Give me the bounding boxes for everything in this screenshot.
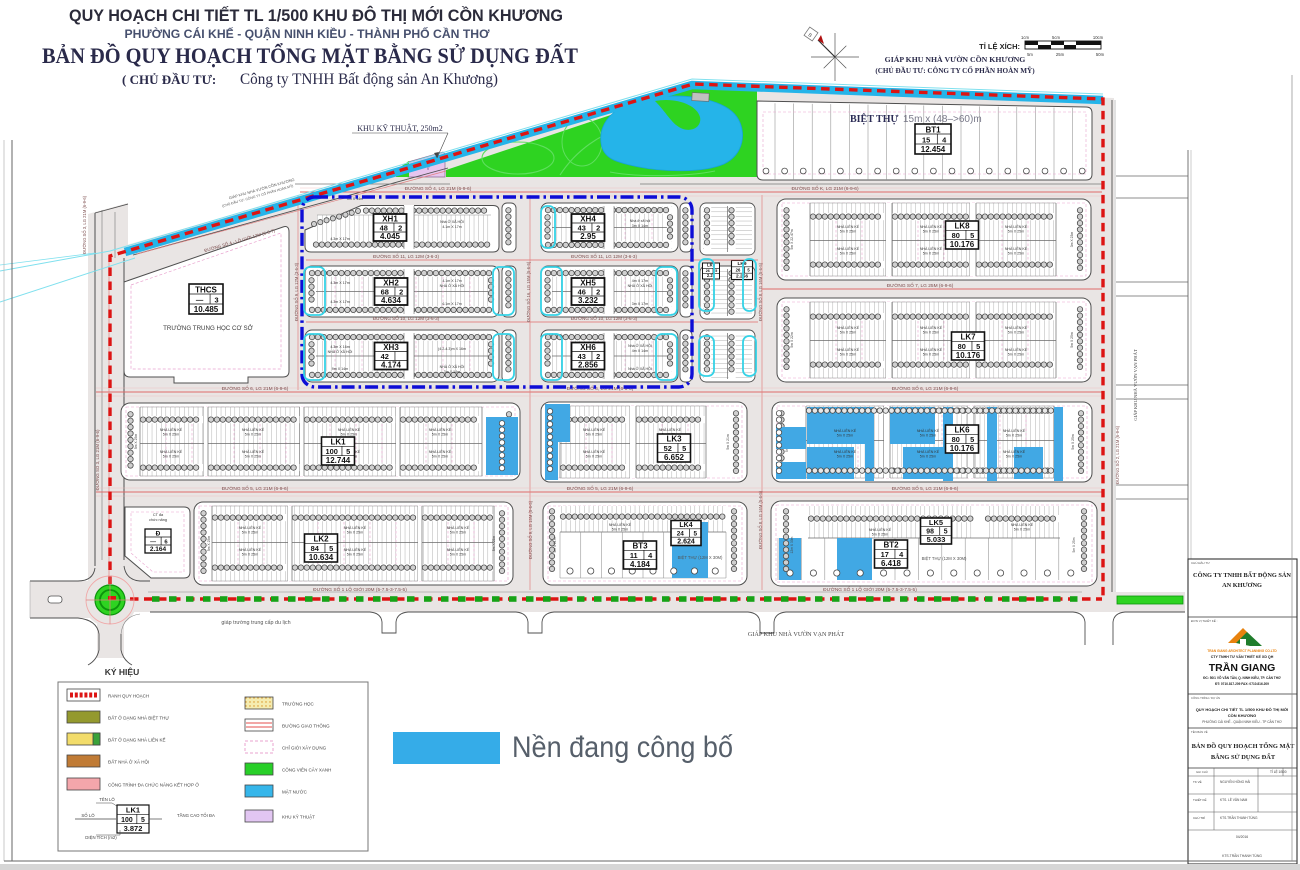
svg-text:68: 68 — [381, 287, 389, 296]
svg-text:4.3m X 17m: 4.3m X 17m — [330, 281, 349, 285]
svg-text:GIÁP KHU NHÀ VƯỜN VẠN PHÁT: GIÁP KHU NHÀ VƯỜN VẠN PHÁT — [748, 630, 845, 638]
svg-text:NHÀ LIÊN KẾ: NHÀ LIÊN KẾ — [837, 224, 860, 229]
svg-text:CỒN KHƯƠNG: CỒN KHƯƠNG — [1228, 713, 1257, 718]
svg-text:5m X 25m: 5m X 25m — [923, 251, 939, 255]
svg-text:5m X 25m: 5m X 25m — [347, 530, 363, 534]
svg-text:NHÀ LIÊN KẾ: NHÀ LIÊN KẾ — [659, 427, 682, 432]
svg-text:52: 52 — [664, 444, 672, 453]
svg-text:XH5: XH5 — [580, 278, 596, 287]
svg-text:5m X 25m: 5m X 25m — [872, 533, 888, 537]
svg-text:3m X 14m: 3m X 14m — [444, 370, 460, 374]
svg-text:43: 43 — [578, 223, 586, 232]
svg-text:12m X 30m: 12m X 30m — [790, 536, 794, 553]
svg-text:LK6: LK6 — [954, 426, 970, 435]
svg-text:ĐT: 0710.817.209 FAX: 0710.: ĐT: 0710.817.209 FAX: 0710.816.209 — [1215, 682, 1269, 686]
svg-text:5m X 25m: 5m X 25m — [920, 433, 936, 437]
svg-text:4.634: 4.634 — [381, 296, 402, 305]
svg-text:1cm: 1cm — [1021, 35, 1029, 40]
svg-text:5m X 21m: 5m X 21m — [553, 537, 557, 552]
svg-text:MẶT NƯỚC: MẶT NƯỚC — [282, 789, 308, 795]
svg-text:100: 100 — [121, 817, 133, 824]
svg-text:NHÀ LIÊN KẾ: NHÀ LIÊN KẾ — [583, 449, 606, 454]
svg-text:( CHỦ ĐẦU TƯ:: ( CHỦ ĐẦU TƯ: — [122, 72, 216, 87]
svg-text:ĐƯỜNG SỐ 11, LG 12M (3-6-3): ĐƯỜNG SỐ 11, LG 12M (3-6-3) — [571, 253, 637, 259]
svg-text:ĐƯỜNG SỐ 9, LG 15M (5-6-5): ĐƯỜNG SỐ 9, LG 15M (5-6-5) — [528, 500, 533, 559]
svg-text:5m X 25m: 5m X 25m — [450, 552, 466, 556]
svg-text:GIÁP KHU NHÀ VƯỜN VẠN PHÁT: GIÁP KHU NHÀ VƯỜN VẠN PHÁT — [1133, 349, 1138, 421]
svg-text:ĐƯỜNG SỐ 4, LG 21M (6-9-6): ĐƯỜNG SỐ 4, LG 21M (6-9-6) — [405, 185, 472, 192]
svg-text:NHÀ Ở XÃ HỘI: NHÀ Ở XÃ HỘI — [328, 349, 353, 354]
svg-text:CHỈ GIỚI XÂY DỰNG: CHỈ GIỚI XÂY DỰNG — [282, 745, 327, 751]
svg-text:100: 100 — [326, 447, 338, 456]
svg-text:TẦNG CAO TỐI ĐA: TẦNG CAO TỐI ĐA — [177, 813, 215, 818]
svg-text:AN KHƯƠNG: AN KHƯƠNG — [1222, 582, 1262, 589]
svg-text:Nền đang công bố: Nền đang công bố — [512, 731, 733, 764]
svg-text:10.176: 10.176 — [950, 240, 975, 249]
svg-text:5m X 25m: 5m X 25m — [923, 229, 939, 233]
svg-text:LK2: LK2 — [313, 535, 329, 544]
svg-text:LK1: LK1 — [330, 438, 346, 447]
svg-text:80: 80 — [952, 231, 960, 240]
svg-text:2.95: 2.95 — [580, 232, 596, 241]
svg-text:6.1m X 17m: 6.1m X 17m — [442, 302, 461, 306]
svg-text:TK VẼ: TK VẼ — [1193, 779, 1202, 784]
svg-text:10cm: 10cm — [1093, 35, 1104, 40]
svg-text:CHỦ ĐẦU TƯ: CHỦ ĐẦU TƯ — [1191, 560, 1210, 565]
svg-text:5m X 25m: 5m X 25m — [432, 454, 448, 458]
svg-text:XH2: XH2 — [383, 278, 399, 287]
svg-text:NHÀ LIÊN KẾ: NHÀ LIÊN KẾ — [834, 449, 857, 454]
svg-text:5.033: 5.033 — [927, 535, 946, 544]
svg-text:84: 84 — [311, 544, 320, 553]
svg-text:ĐẤT NHÀ Ở XÃ HỘI: ĐẤT NHÀ Ở XÃ HỘI — [108, 759, 149, 765]
svg-text:5m: 5m — [1027, 52, 1033, 57]
svg-text:KTS.TRẦN THANH TÙNG: KTS.TRẦN THANH TÙNG — [1220, 815, 1258, 820]
svg-text:3: 3 — [214, 295, 218, 304]
svg-text:5m X 25m: 5m X 25m — [586, 432, 602, 436]
svg-text:CTY TNHH TƯ VẤN THIẾT KẾ XD QH: CTY TNHH TƯ VẤN THIẾT KẾ XD QH — [1211, 654, 1274, 659]
svg-text:5m X 25m: 5m X 25m — [837, 433, 853, 437]
svg-text:XH1: XH1 — [382, 214, 398, 223]
svg-text:giáp trường trung cấp du lịch: giáp trường trung cấp du lịch — [221, 620, 290, 626]
svg-text:NHÀ LIÊN KẾ: NHÀ LIÊN KẾ — [869, 527, 892, 532]
svg-text:chức năng: chức năng — [149, 518, 167, 522]
svg-text:5cm: 5cm — [1052, 35, 1060, 40]
svg-text:TRƯỜNG HỌC: TRƯỜNG HỌC — [282, 701, 314, 707]
svg-text:4.174: 4.174 — [381, 361, 402, 370]
svg-text:5m X 25m: 5m X 25m — [1006, 433, 1022, 437]
svg-text:ĐƯỜNG SỐ 8, LG 16M (5-6-5): ĐƯỜNG SỐ 8, LG 16M (5-6-5) — [758, 490, 763, 549]
svg-text:CÔNG TY TNHH BẤT ĐỘNG SẢN: CÔNG TY TNHH BẤT ĐỘNG SẢN — [1193, 571, 1291, 579]
svg-text:4.1m X 17m: 4.1m X 17m — [442, 225, 461, 229]
svg-text:5m X 25m: 5m X 25m — [163, 454, 179, 458]
svg-text:NHÀ LIÊN KẾ: NHÀ LIÊN KẾ — [837, 325, 860, 330]
svg-text:5m X 25m: 5m X 25m — [612, 528, 628, 532]
svg-text:ĐƯỜNG SỐ 3, LG 21M (6-9-6): ĐƯỜNG SỐ 3, LG 21M (6-9-6) — [95, 429, 100, 490]
svg-text:5m X 25m: 5m X 25m — [347, 552, 363, 556]
svg-text:Nhà ở xã hội: Nhà ở xã hội — [630, 219, 651, 223]
svg-text:2: 2 — [596, 352, 600, 361]
svg-text:NHÀ LIÊN KẾ: NHÀ LIÊN KẾ — [447, 525, 470, 530]
svg-text:80: 80 — [958, 342, 966, 351]
svg-text:(4.2-4.3)m X 16m: (4.2-4.3)m X 16m — [438, 347, 466, 351]
svg-text:NHÀ LIÊN KẾ: NHÀ LIÊN KẾ — [917, 428, 940, 433]
svg-text:5m X 25m: 5m X 25m — [1008, 229, 1024, 233]
svg-text:5m X 25m: 5m X 25m — [1014, 528, 1030, 532]
svg-text:5m X 25m: 5m X 25m — [840, 229, 856, 233]
svg-text:46: 46 — [578, 287, 586, 296]
svg-text:25m: 25m — [1056, 52, 1065, 57]
svg-text:LK5: LK5 — [929, 518, 943, 527]
svg-text:5: 5 — [715, 269, 717, 273]
svg-text:2.856: 2.856 — [578, 361, 599, 370]
svg-text:NHÀ LIÊN KẾ: NHÀ LIÊN KẾ — [920, 347, 943, 352]
svg-text:NGUYỄN HỒNG HẢI: NGUYỄN HỒNG HẢI — [1220, 779, 1250, 784]
svg-text:TRƯỜNG TRUNG HỌC CƠ SỞ: TRƯỜNG TRUNG HỌC CƠ SỞ — [163, 325, 254, 332]
svg-text:ĐẤT Ở DẠNG NHÀ BIỆT THỰ: ĐẤT Ở DẠNG NHÀ BIỆT THỰ — [108, 714, 169, 721]
svg-text:NHÀ LIÊN KẾ: NHÀ LIÊN KẾ — [917, 449, 940, 454]
svg-text:GHI CHÚ: GHI CHÚ — [1196, 769, 1208, 774]
svg-text:ĐƯỜNG SỐ 10, LG 12M (3-6-3): ĐƯỜNG SỐ 10, LG 12M (3-6-3) — [373, 315, 440, 321]
svg-text:NHÀ LIÊN KẾ: NHÀ LIÊN KẾ — [837, 347, 860, 352]
svg-text:Nhà Ở XÃ HỘI: Nhà Ở XÃ HỘI — [440, 219, 464, 224]
svg-text:NHÀ LIÊN KẾ: NHÀ LIÊN KẾ — [1011, 522, 1034, 527]
svg-text:ĐƯỜNG GIAO THÔNG: ĐƯỜNG GIAO THÔNG — [282, 723, 330, 729]
svg-text:TRAN GIANG ARCHITECT PLANNING: TRAN GIANG ARCHITECT PLANNING CO.LTD — [1207, 649, 1277, 653]
svg-text:XH4: XH4 — [580, 214, 596, 223]
svg-text:4.184: 4.184 — [630, 560, 651, 569]
svg-text:4.3m X 17m: 4.3m X 17m — [330, 237, 349, 241]
svg-text:ĐƯỜNG SỐ 9, LG 12M (3-6-3): ĐƯỜNG SỐ 9, LG 12M (3-6-3) — [294, 262, 299, 321]
svg-text:BẢN ĐỒ QUY HOẠCH TỔNG MẶT: BẢN ĐỒ QUY HOẠCH TỔNG MẶT — [1192, 742, 1296, 750]
svg-text:5m X 25m: 5m X 25m — [1070, 332, 1074, 348]
svg-text:TRẦN GIANG: TRẦN GIANG — [1209, 661, 1276, 674]
svg-text:5: 5 — [682, 444, 686, 453]
svg-text:17: 17 — [881, 550, 889, 559]
svg-text:5m X 25m: 5m X 25m — [134, 434, 138, 450]
svg-text:ĐƯỜNG SỐ 5, LG 21M (6-9-6): ĐƯỜNG SỐ 5, LG 21M (6-9-6) — [567, 485, 634, 492]
svg-text:4.1m X 17m: 4.1m X 17m — [442, 279, 461, 283]
svg-text:ĐC: 50/1 VÕ VĂN TẦN, Q. NINH K: ĐC: 50/1 VÕ VĂN TẦN, Q. NINH KIỀU, TP. C… — [1203, 675, 1281, 680]
svg-text:NHÀ LIÊN KẾ: NHÀ LIÊN KẾ — [609, 522, 632, 527]
svg-text:RANH QUY HOẠCH: RANH QUY HOẠCH — [108, 694, 149, 699]
svg-text:5m X 25m: 5m X 25m — [245, 432, 261, 436]
svg-text:ĐƯỜNG SỐ 3, LG 21M (6-9-6): ĐƯỜNG SỐ 3, LG 21M (6-9-6) — [82, 195, 87, 254]
svg-text:—: — — [150, 539, 156, 545]
svg-text:BẢN ĐỒ QUY HOẠCH TỔNG MẶT BẰNG: BẢN ĐỒ QUY HOẠCH TỔNG MẶT BẰNG SỬ DỤNG Đ… — [42, 42, 578, 68]
svg-text:Nhà Ở XÃ HỘI: Nhà Ở XÃ HỘI — [628, 343, 652, 348]
svg-text:5: 5 — [970, 435, 974, 444]
svg-text:ĐƯỜNG SỐ K, LG 21M (6-9-6): ĐƯỜNG SỐ K, LG 21M (6-9-6) — [791, 185, 859, 192]
svg-text:5: 5 — [141, 817, 145, 824]
svg-text:(CHỦ ĐẦU TƯ: CÔNG TY CỔ PHẦN H: (CHỦ ĐẦU TƯ: CÔNG TY CỔ PHẦN HOÀN MỸ) — [875, 65, 1035, 75]
svg-text:5m X 25m: 5m X 25m — [840, 352, 856, 356]
svg-text:NHÀ LIÊN KẾ: NHÀ LIÊN KẾ — [1005, 325, 1028, 330]
svg-text:5m X 25m: 5m X 25m — [432, 432, 448, 436]
svg-text:NHÀ LIÊN KẾ: NHÀ LIÊN KẾ — [242, 427, 265, 432]
svg-text:6.652: 6.652 — [664, 453, 685, 462]
svg-text:NHÀ Ở XÃ HỘI: NHÀ Ở XÃ HỘI — [440, 283, 465, 288]
svg-text:5m X 25m: 5m X 25m — [923, 330, 939, 334]
svg-text:NHÀ LIÊN KẾ: NHÀ LIÊN KẾ — [1003, 449, 1026, 454]
svg-text:5: 5 — [976, 342, 980, 351]
svg-text:TỈ LỆ 1/500: TỈ LỆ 1/500 — [1270, 769, 1287, 774]
svg-text:CÔNG TRÌNH ĐA CHỨC NĂNG KẾT HỢ: CÔNG TRÌNH ĐA CHỨC NĂNG KẾT HỢP Ở — [108, 782, 199, 788]
svg-text:BIỆT THỰ: BIỆT THỰ — [850, 112, 898, 125]
svg-text:LK8: LK8 — [954, 222, 970, 231]
svg-text:5m X 25m: 5m X 25m — [1072, 537, 1076, 552]
svg-text:5m X 22m: 5m X 22m — [790, 332, 794, 348]
svg-text:2.624: 2.624 — [677, 539, 695, 546]
svg-text:4.3m X 16m: 4.3m X 16m — [330, 345, 349, 349]
svg-text:5m X 25m: 5m X 25m — [341, 432, 357, 436]
svg-text:NHÀ LIÊN KẾ: NHÀ LIÊN KẾ — [429, 427, 452, 432]
svg-text:12.744: 12.744 — [326, 456, 351, 465]
svg-text:4m X 14m: 4m X 14m — [632, 349, 648, 353]
svg-text:24: 24 — [677, 531, 685, 538]
svg-text:2: 2 — [596, 287, 600, 296]
svg-text:BẰNG SỬ DỤNG ĐẤT: BẰNG SỬ DỤNG ĐẤT — [1211, 753, 1276, 761]
svg-text:3m X 17m: 3m X 17m — [632, 302, 648, 306]
svg-text:NHÀ LIÊN KẾ: NHÀ LIÊN KẾ — [834, 428, 857, 433]
svg-text:5: 5 — [970, 231, 974, 240]
svg-text:5m X 25m: 5m X 25m — [163, 432, 179, 436]
svg-text:NHÀ LIÊN KẾ: NHÀ LIÊN KẾ — [160, 449, 183, 454]
svg-text:QUY HOẠCH CHI TIẾT TL 1/500 KH: QUY HOẠCH CHI TIẾT TL 1/500 KHU ĐÔ THỊ M… — [69, 6, 563, 25]
svg-text:ĐƯỜNG SỐ 2, LG 21M (6-9-6): ĐƯỜNG SỐ 2, LG 21M (6-9-6) — [1115, 425, 1120, 484]
svg-text:PHƯỜNG CÁI KHẾ - QUẬN NINH KIỀ: PHƯỜNG CÁI KHẾ - QUẬN NINH KIỀU - THÀNH … — [125, 26, 491, 41]
svg-text:NHÀ LIÊN KẾ: NHÀ LIÊN KẾ — [1005, 347, 1028, 352]
svg-text:BIỆT THỰ (12M X 30M): BIỆT THỰ (12M X 30M) — [678, 555, 723, 560]
svg-text:5m X 25m: 5m X 25m — [1071, 434, 1075, 450]
svg-text:4.3m X 17m: 4.3m X 17m — [330, 300, 349, 304]
svg-text:5m X 25m: 5m X 25m — [242, 530, 258, 534]
svg-text:BIỆT THỰ (12M X 30M): BIỆT THỰ (12M X 30M) — [922, 556, 967, 561]
svg-text:CHỦ TRÌ: CHỦ TRÌ — [1193, 815, 1205, 820]
svg-text:CÔNG TRÌNH / DỰ ÁN: CÔNG TRÌNH / DỰ ÁN — [1191, 695, 1220, 700]
svg-text:5m X 25m: 5m X 25m — [1008, 352, 1024, 356]
svg-text:NHÀ LIÊN KẾ: NHÀ LIÊN KẾ — [920, 224, 943, 229]
svg-text:GIÁP KHU NHÀ VƯỜN CỒN KHƯƠNG: GIÁP KHU NHÀ VƯỜN CỒN KHƯƠNG — [885, 54, 1026, 64]
svg-text:4m X 17m: 4m X 17m — [632, 279, 648, 283]
svg-text:LK1: LK1 — [126, 806, 140, 815]
svg-text:ĐƯỜNG SỐ 6, LG 21M (6-9-6): ĐƯỜNG SỐ 6, LG 21M (6-9-6) — [892, 385, 959, 392]
svg-text:—: — — [196, 295, 204, 304]
svg-text:10.485: 10.485 — [194, 305, 219, 314]
svg-text:NHÀ LIÊN KẾ: NHÀ LIÊN KẾ — [920, 325, 943, 330]
svg-text:Nhà Ở XÃ HỘI: Nhà Ở XÃ HỘI — [628, 366, 652, 371]
svg-text:3m X 23m: 3m X 23m — [1070, 232, 1074, 248]
svg-text:KTS. LÊ VĂN NAM: KTS. LÊ VĂN NAM — [1220, 797, 1248, 802]
svg-text:TÊN BẢN VẼ: TÊN BẢN VẼ — [1191, 729, 1208, 734]
svg-text:5: 5 — [329, 544, 333, 553]
svg-text:KHU KỸ THUẬT, 250m2: KHU KỸ THUẬT, 250m2 — [357, 123, 442, 133]
svg-text:ĐẤT Ở DẠNG NHÀ LIÊN KẾ: ĐẤT Ở DẠNG NHÀ LIÊN KẾ — [108, 736, 166, 743]
svg-text:NHÀ LIÊN KẾ: NHÀ LIÊN KẾ — [344, 525, 367, 530]
svg-text:5m X 25m: 5m X 25m — [1006, 454, 1022, 458]
svg-text:5m X 25m: 5m X 25m — [1008, 251, 1024, 255]
svg-text:80: 80 — [952, 435, 960, 444]
svg-text:NHÀ LIÊN KẾ: NHÀ LIÊN KẾ — [583, 427, 606, 432]
svg-text:BT3: BT3 — [632, 542, 648, 551]
svg-text:LK4: LK4 — [679, 522, 692, 529]
svg-text:5m X 25m: 5m X 25m — [450, 530, 466, 534]
svg-text:NHÀ LIÊN KẾ: NHÀ LIÊN KẾ — [837, 246, 860, 251]
svg-text:04/2016: 04/2016 — [1236, 835, 1248, 839]
svg-text:NHÀ LIÊN KẾ: NHÀ LIÊN KẾ — [239, 547, 262, 552]
svg-text:ĐƯỜNG SỐ 7, LG 25M (6-9-6): ĐƯỜNG SỐ 7, LG 25M (6-9-6) — [887, 282, 954, 289]
svg-text:2: 2 — [399, 287, 403, 296]
svg-text:ĐƯỜNG SỐ 1 LỘ GIỚI 20M (5-7.5-: ĐƯỜNG SỐ 1 LỘ GIỚI 20M (5-7.5-3-7.5-5) — [313, 586, 407, 593]
svg-text:5m X 25m: 5m X 25m — [492, 536, 496, 552]
svg-text:ĐƠN VỊ THIẾT KẾ :: ĐƠN VỊ THIẾT KẾ : — [1191, 618, 1218, 623]
svg-text:THIẾT KẾ: THIẾT KẾ — [1193, 797, 1206, 802]
svg-text:DIỆN TÍCH (m2): DIỆN TÍCH (m2) — [85, 835, 117, 840]
svg-text:5m X 25m: 5m X 25m — [837, 454, 853, 458]
svg-text:5m X 21m: 5m X 21m — [726, 434, 730, 450]
svg-text:ĐƯỜNG SỐ 1 LỘ GIỚI 20M (5-7.5-: ĐƯỜNG SỐ 1 LỘ GIỚI 20M (5-7.5-3-7.5-5) — [823, 586, 917, 593]
svg-text:Đ: Đ — [156, 530, 161, 537]
svg-text:4.045: 4.045 — [380, 232, 401, 241]
svg-text:50m: 50m — [1096, 52, 1105, 57]
svg-text:NHÀ LIÊN KẾ: NHÀ LIÊN KẾ — [447, 547, 470, 552]
svg-text:2: 2 — [398, 223, 402, 232]
svg-text:ĐƯỜNG SỐ 6, LG 21M (6-9-6): ĐƯỜNG SỐ 6, LG 21M (6-9-6) — [222, 385, 289, 392]
svg-text:NHÀ LIÊN KẾ: NHÀ LIÊN KẾ — [429, 449, 452, 454]
svg-text:NHÀ LIÊN KẾ: NHÀ LIÊN KẾ — [242, 449, 265, 454]
svg-text:KTS.TRẦN THANH TÙNG: KTS.TRẦN THANH TÙNG — [1222, 853, 1262, 858]
svg-text:12.454: 12.454 — [921, 145, 946, 154]
svg-text:BT1: BT1 — [925, 125, 941, 134]
svg-text:6.418: 6.418 — [881, 559, 902, 568]
svg-text:ĐƯỜNG SỐ 16, LG 15M (5-6-5): ĐƯỜNG SỐ 16, LG 15M (5-6-5) — [526, 261, 531, 322]
svg-text:5: 5 — [694, 531, 698, 538]
svg-text:5m X 25m: 5m X 25m — [840, 330, 856, 334]
svg-text:XH6: XH6 — [580, 343, 596, 352]
svg-text:NHÀ LIÊN KẾ: NHÀ LIÊN KẾ — [338, 427, 361, 432]
svg-text:2.164: 2.164 — [150, 546, 167, 553]
svg-text:3m X 14m: 3m X 14m — [632, 224, 648, 228]
svg-text:42: 42 — [381, 352, 389, 361]
svg-text:26: 26 — [736, 268, 741, 273]
svg-text:3.232: 3.232 — [578, 296, 599, 305]
svg-text:PHƯỜNG CÁI KHẾ - QUẬN NINH KIỀ: PHƯỜNG CÁI KHẾ - QUẬN NINH KIỀU - TP CẦN… — [1202, 719, 1282, 724]
svg-text:XH3: XH3 — [383, 343, 399, 352]
svg-text:QUY HOẠCH CHI TIẾT TL 1/500 K: QUY HOẠCH CHI TIẾT TL 1/500 KHU ĐÔ THỊ M… — [1196, 707, 1289, 712]
svg-text:LK3: LK3 — [666, 435, 682, 444]
svg-text:10.634: 10.634 — [309, 553, 334, 562]
svg-text:NHÀ LIÊN KẾ: NHÀ LIÊN KẾ — [920, 246, 943, 251]
svg-text:ĐƯỜNG SỐ 11, LG 12M (3-6-3): ĐƯỜNG SỐ 11, LG 12M (3-6-3) — [373, 253, 439, 259]
svg-text:5m X 25m: 5m X 25m — [207, 536, 211, 552]
svg-text:ĐƯỜNG SỐ 8, LG 16M (5-6-5): ĐƯỜNG SỐ 8, LG 16M (5-6-5) — [758, 262, 763, 321]
svg-text:CÔNG VIÊN CÂY XANH: CÔNG VIÊN CÂY XANH — [282, 766, 331, 773]
svg-text:ĐƯỜNG SỐ 10, LG 12M (3-6-3): ĐƯỜNG SỐ 10, LG 12M (3-6-3) — [571, 315, 638, 321]
svg-text:5m X 25m: 5m X 25m — [245, 454, 261, 458]
svg-text:10.176: 10.176 — [950, 444, 975, 453]
svg-text:LK7: LK7 — [960, 333, 976, 342]
svg-text:3.872: 3.872 — [124, 824, 143, 833]
svg-text:CT đa: CT đa — [153, 513, 164, 517]
svg-text:48: 48 — [380, 223, 388, 232]
svg-text:SỐ LÔ: SỐ LÔ — [81, 813, 95, 818]
svg-text:5m X 25m: 5m X 25m — [1008, 330, 1024, 334]
svg-text:NHÀ LIÊN KẾ: NHÀ LIÊN KẾ — [344, 547, 367, 552]
svg-text:15: 15 — [922, 135, 930, 144]
svg-text:5m X 22.47m: 5m X 22.47m — [790, 229, 794, 249]
svg-text:9m X 14m: 9m X 14m — [332, 367, 348, 371]
svg-text:NHÀ LIÊN KẾ: NHÀ LIÊN KẾ — [239, 525, 262, 530]
svg-text:5m X 25m: 5m X 25m — [840, 251, 856, 255]
svg-text:KHU KỸ THUẬT: KHU KỸ THUẬT — [282, 814, 315, 820]
svg-text:5m X 25m: 5m X 25m — [242, 552, 258, 556]
svg-text:ĐƯỜNG SỐ 5, LG 21M (6-9-6): ĐƯỜNG SỐ 5, LG 21M (6-9-6) — [222, 485, 289, 492]
svg-text:NHÀ LIÊN KẾ: NHÀ LIÊN KẾ — [1005, 224, 1028, 229]
svg-text:NHÀ LIÊN KẾ: NHÀ LIÊN KẾ — [160, 427, 183, 432]
svg-text:NHÀ Ở XÃ HỘI: NHÀ Ở XÃ HỘI — [628, 283, 653, 288]
svg-text:5: 5 — [346, 447, 350, 456]
svg-text:2: 2 — [596, 223, 600, 232]
svg-text:10.176: 10.176 — [956, 351, 981, 360]
svg-text:5m X 25m: 5m X 25m — [586, 454, 602, 458]
svg-text:NHÀ LIÊN KẾ: NHÀ LIÊN KẾ — [1005, 246, 1028, 251]
svg-text:BT2: BT2 — [883, 541, 899, 550]
svg-text:43: 43 — [578, 352, 586, 361]
svg-text:TÊN LÔ: TÊN LÔ — [99, 797, 115, 802]
svg-text:NHÀ LIÊN KẾ: NHÀ LIÊN KẾ — [1003, 428, 1026, 433]
svg-text:5m X 25m: 5m X 25m — [920, 454, 936, 458]
svg-text:5m X 25m: 5m X 25m — [923, 352, 939, 356]
svg-text:THCS: THCS — [195, 285, 217, 294]
svg-text:TỈ LỆ XÍCH:: TỈ LỆ XÍCH: — [979, 42, 1020, 51]
svg-text:KÝ HIỆU: KÝ HIỆU — [105, 666, 139, 677]
svg-text:NHÀ Ở XÃ HỘI: NHÀ Ở XÃ HỘI — [440, 364, 465, 369]
svg-text:11: 11 — [630, 551, 638, 560]
svg-text:ĐƯỜNG SỐ 5, LG 21M (6-9-6): ĐƯỜNG SỐ 5, LG 21M (6-9-6) — [892, 485, 959, 492]
svg-text:Công ty TNHH Bất động sản An K: Công ty TNHH Bất động sản An Khương) — [240, 71, 498, 88]
